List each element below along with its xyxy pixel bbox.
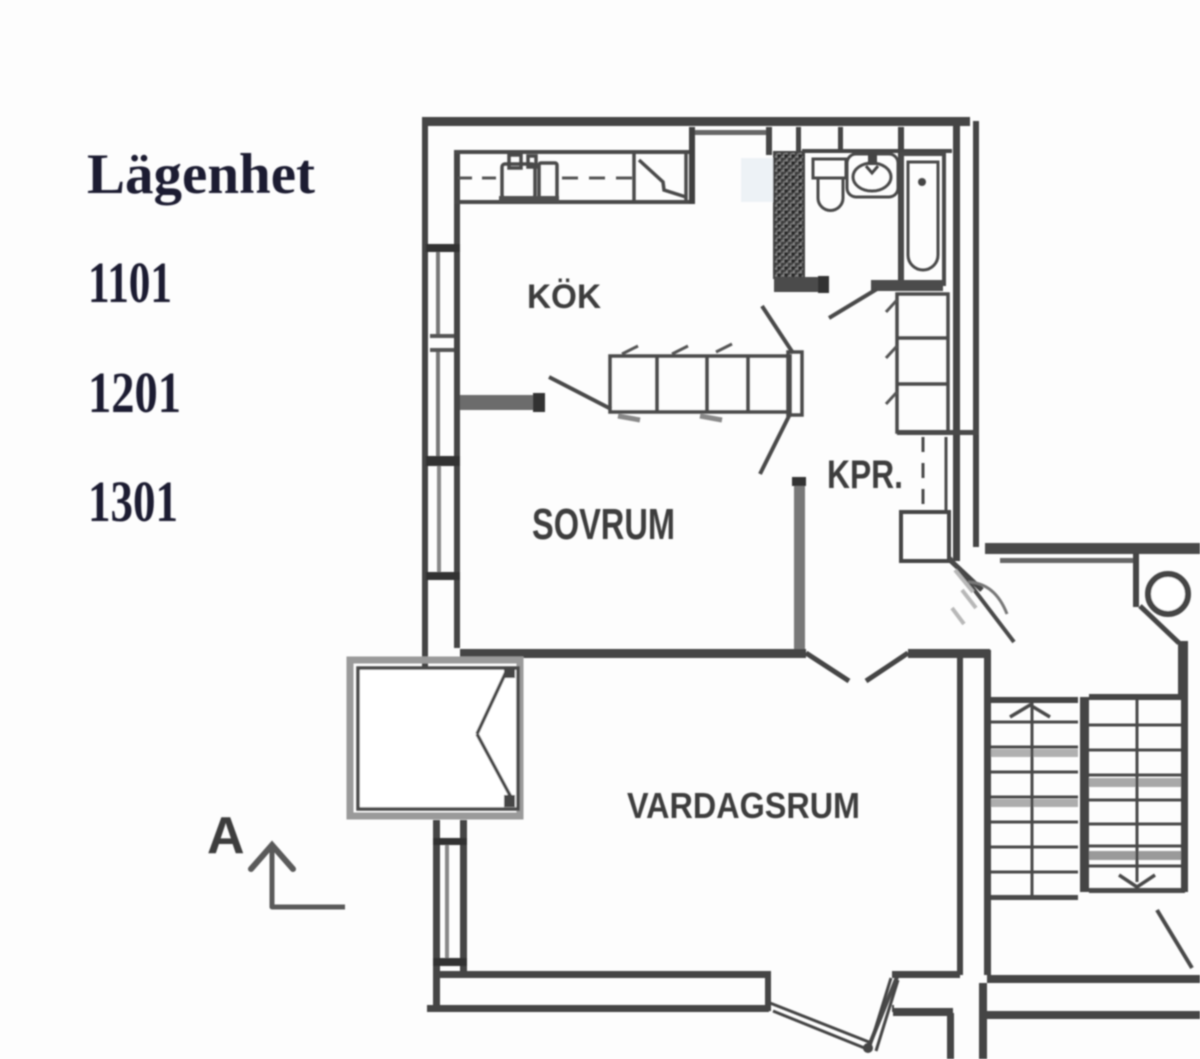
svg-text:A: A: [207, 807, 245, 865]
svg-text:VARDAGSRUM: VARDAGSRUM: [627, 785, 860, 826]
svg-text:SOVRUM: SOVRUM: [532, 500, 675, 549]
svg-text:1101: 1101: [88, 250, 172, 315]
svg-text:Lägenhet: Lägenhet: [87, 143, 315, 206]
svg-text:KÖK: KÖK: [527, 278, 601, 316]
svg-text:1301: 1301: [88, 469, 178, 534]
svg-text:KPR.: KPR.: [827, 453, 903, 497]
svg-text:1201: 1201: [88, 360, 181, 425]
